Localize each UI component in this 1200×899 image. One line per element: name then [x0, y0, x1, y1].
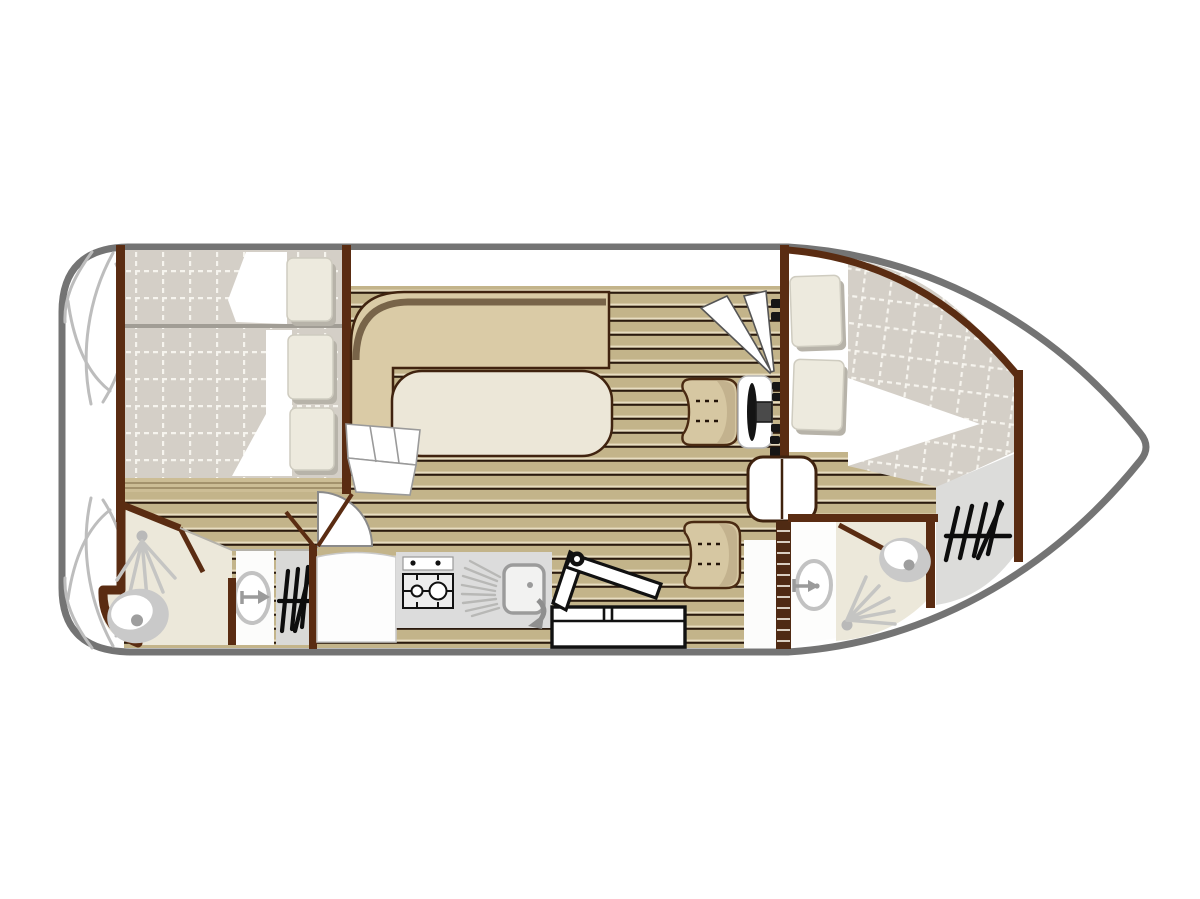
- pillow: [790, 275, 847, 352]
- bench-chest: [552, 607, 685, 647]
- aft-cabin: [116, 245, 351, 522]
- pillow: [792, 359, 849, 436]
- pillow: [287, 258, 336, 326]
- double-swing-door: [748, 457, 816, 521]
- dinette-seat: [684, 522, 740, 588]
- wall-helm: [780, 245, 789, 459]
- pillow: [290, 408, 338, 475]
- wall-washbasin: [228, 578, 236, 645]
- bow-bulkhead-wall: [1014, 370, 1023, 562]
- cabin-entry-step: [124, 478, 343, 492]
- stove: [403, 557, 453, 608]
- corridor-bottom-wall: [788, 514, 938, 522]
- companionway-steps: [346, 424, 420, 495]
- helm-seat: [682, 379, 738, 445]
- saloon-table: [392, 371, 612, 456]
- washbasin: [235, 573, 270, 623]
- wall-galley-left: [309, 545, 317, 649]
- wall-ladder: [776, 521, 791, 649]
- floor-plan-svg: [0, 0, 1200, 899]
- washbasin: [794, 561, 831, 609]
- pillow: [288, 335, 337, 404]
- saloon-top-ledge: [351, 250, 788, 286]
- refrigerator: [317, 553, 396, 643]
- wall-aft-cabin-left: [116, 245, 125, 522]
- wheel-hub: [756, 402, 772, 422]
- boat-floor-plan: [0, 0, 1200, 899]
- landing-floor: [744, 540, 777, 648]
